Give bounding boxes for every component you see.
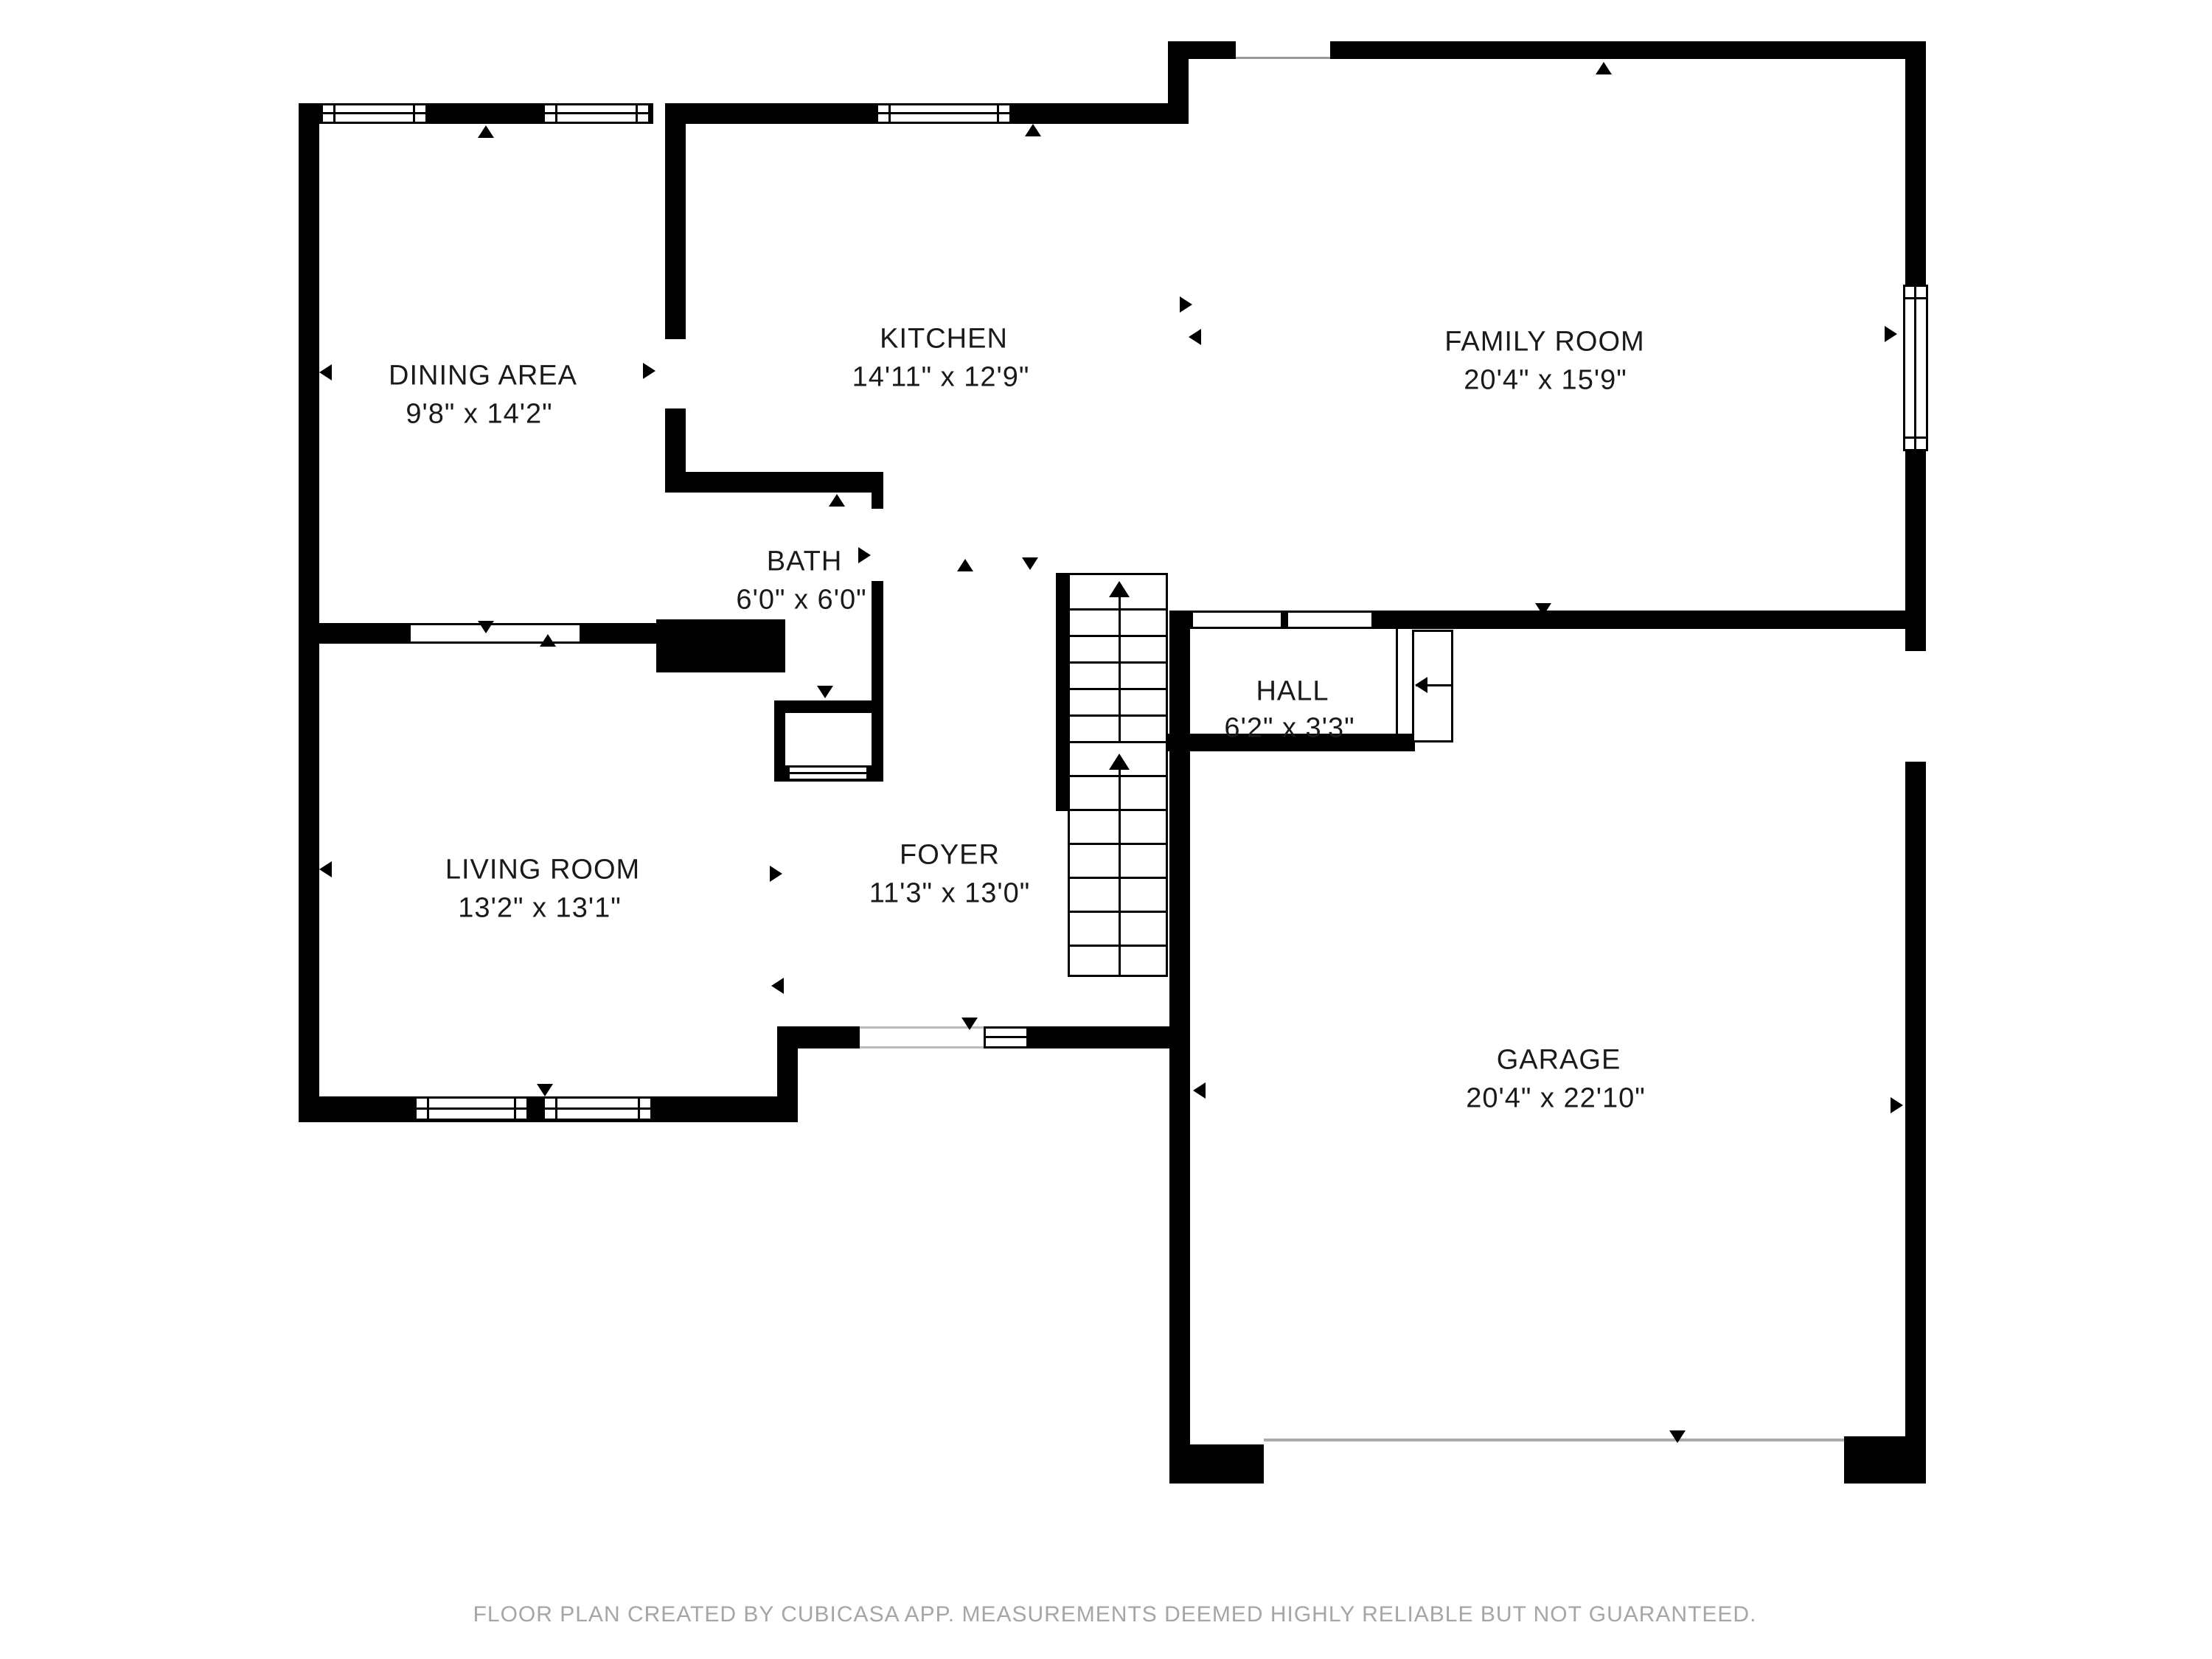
room-label-living: LIVING ROOM bbox=[445, 855, 640, 886]
marker-right-icon bbox=[858, 547, 871, 563]
stair-tread bbox=[1070, 877, 1166, 879]
marker-left-icon bbox=[1189, 329, 1201, 345]
marker-right-icon bbox=[643, 363, 655, 379]
marker-left-icon bbox=[771, 978, 784, 994]
staircase bbox=[1068, 573, 1168, 977]
window-dining-1 bbox=[321, 103, 428, 124]
window-mullion bbox=[555, 1098, 557, 1119]
room-label-family: FAMILY ROOM bbox=[1444, 327, 1644, 358]
window-mullion bbox=[636, 105, 638, 122]
marker-down-icon bbox=[1022, 557, 1038, 570]
wall-bath-mass bbox=[656, 619, 785, 672]
wall-joint-slit bbox=[653, 103, 665, 124]
window-mullion bbox=[888, 105, 891, 122]
stair-arrow-shaft bbox=[1119, 768, 1121, 857]
marker-right-icon bbox=[770, 866, 782, 882]
stair-tread bbox=[1070, 635, 1166, 637]
stair-tread bbox=[1070, 809, 1166, 811]
stair-center-line-upper bbox=[1119, 596, 1121, 741]
wall-top-dining-kitchen bbox=[299, 103, 1189, 124]
room-label-kitchen: KITCHEN bbox=[880, 324, 1008, 355]
room-label-foyer: FOYER bbox=[900, 840, 1000, 872]
window-mullion bbox=[427, 1098, 429, 1119]
wall-dining-living-left bbox=[299, 623, 411, 644]
marker-down-icon bbox=[537, 1084, 553, 1096]
wall-dining-kitchen-divider-upper bbox=[665, 124, 686, 339]
marker-up-icon bbox=[540, 634, 556, 647]
marker-left-icon bbox=[319, 364, 332, 380]
stair-up-arrow-icon bbox=[1109, 754, 1130, 770]
door-swing-arrow-icon bbox=[1415, 677, 1427, 693]
marker-up-icon bbox=[829, 494, 845, 507]
window-entry-sidelight bbox=[984, 1026, 1029, 1048]
marker-up-icon bbox=[1596, 62, 1612, 74]
marker-right-icon bbox=[1885, 326, 1897, 342]
marker-up-icon bbox=[1025, 124, 1041, 136]
window-family-right bbox=[1903, 285, 1928, 451]
marker-right-icon bbox=[1180, 296, 1192, 313]
room-label-bath: BATH bbox=[767, 546, 843, 578]
room-dims-living: 13'2" x 13'1" bbox=[458, 893, 621, 925]
marker-down-icon bbox=[478, 621, 494, 633]
door-opening-dining-kitchen bbox=[665, 339, 686, 408]
window-living-2 bbox=[543, 1096, 653, 1121]
wall-garage-bottom-left-stub bbox=[1169, 1444, 1264, 1484]
marker-down-icon bbox=[1535, 603, 1551, 616]
marker-down-icon bbox=[1669, 1430, 1686, 1443]
door-frame-line-left bbox=[1396, 629, 1398, 734]
window-mullion bbox=[514, 1098, 516, 1119]
window-closet-bottom bbox=[787, 765, 869, 781]
footer-disclaimer: FLOOR PLAN CREATED BY CUBICASA APP. MEAS… bbox=[473, 1602, 1757, 1627]
window-mullion bbox=[997, 105, 999, 122]
room-dims-dining: 9'8" x 14'2" bbox=[406, 399, 552, 431]
stair-tread bbox=[1070, 945, 1166, 947]
room-label-dining: DINING AREA bbox=[389, 361, 577, 392]
marker-up-icon bbox=[957, 559, 973, 571]
stair-tread bbox=[1070, 843, 1166, 845]
room-label-garage: GARAGE bbox=[1497, 1045, 1621, 1077]
stair-up-arrow-icon bbox=[1109, 581, 1130, 597]
marker-left-icon bbox=[1193, 1082, 1206, 1099]
room-dims-foyer: 11'3" x 13'0" bbox=[869, 878, 1031, 910]
wall-stub-hall-opening bbox=[1281, 611, 1288, 629]
room-dims-bath: 6'0" x 6'0" bbox=[736, 585, 866, 616]
stair-tread bbox=[1070, 741, 1166, 743]
marker-up-icon bbox=[478, 125, 494, 138]
marker-right-icon bbox=[1891, 1097, 1903, 1113]
wall-bath-top bbox=[665, 472, 883, 493]
wall-bath-bottom bbox=[774, 700, 872, 713]
floor-plan: DINING AREA 9'8" x 14'2" KITCHEN 14'11" … bbox=[0, 0, 2212, 1659]
stair-tread bbox=[1070, 775, 1166, 777]
window-living-1 bbox=[414, 1096, 529, 1121]
garage-door-line bbox=[1264, 1439, 1844, 1441]
door-opening-family-top bbox=[1236, 41, 1330, 59]
wall-left bbox=[299, 103, 319, 1122]
window-mullion bbox=[333, 105, 335, 122]
stair-tread bbox=[1070, 661, 1166, 664]
wall-right bbox=[1905, 41, 1926, 1484]
marker-down-icon bbox=[961, 1018, 978, 1030]
window-dining-2 bbox=[543, 103, 650, 124]
stair-tread bbox=[1070, 608, 1166, 611]
window-mullion bbox=[1905, 297, 1927, 299]
window-mullion bbox=[413, 105, 415, 122]
marker-down-icon bbox=[817, 686, 833, 698]
room-dims-garage: 20'4" x 22'10" bbox=[1466, 1083, 1646, 1115]
window-mullion bbox=[1905, 437, 1927, 439]
stair-tread bbox=[1070, 688, 1166, 690]
stair-tread bbox=[1070, 911, 1166, 913]
window-mullion bbox=[638, 1098, 640, 1119]
window-kitchen bbox=[876, 103, 1012, 124]
door-opening-bath bbox=[870, 509, 885, 581]
wall-dining-living-right bbox=[580, 623, 658, 644]
window-mullion bbox=[555, 105, 557, 122]
room-label-hall: HALL bbox=[1256, 676, 1329, 708]
room-dims-kitchen: 14'11" x 12'9" bbox=[852, 362, 1030, 394]
stair-tread bbox=[1070, 714, 1166, 717]
opening-garage-right-wall bbox=[1902, 651, 1929, 762]
room-dims-family: 20'4" x 15'9" bbox=[1464, 365, 1627, 397]
marker-left-icon bbox=[319, 861, 332, 877]
room-dims-hall: 6'2" x 3'3" bbox=[1224, 713, 1354, 745]
wall-garage-bottom-right-stub bbox=[1844, 1436, 1926, 1484]
